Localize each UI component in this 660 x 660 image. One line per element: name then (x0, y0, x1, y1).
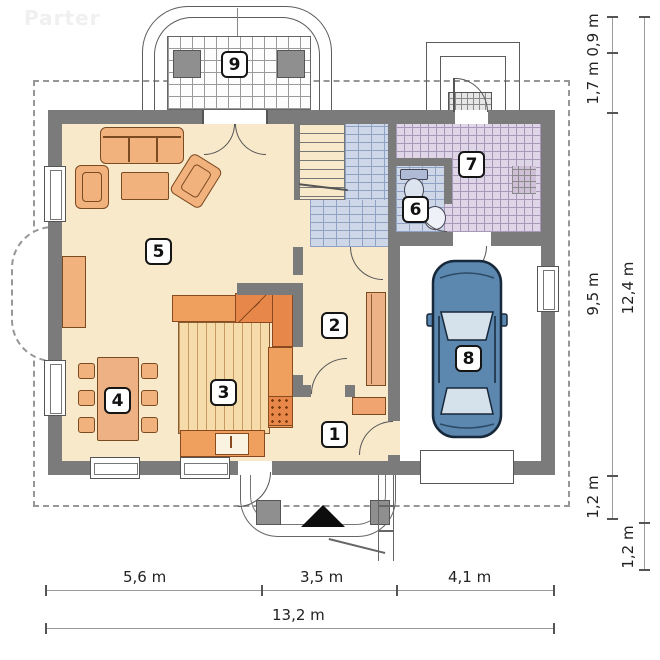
armchair-left-seat (82, 172, 102, 202)
wall-hall2-room1-a (303, 385, 311, 397)
entrance-arrow-icon (301, 505, 345, 527)
dim-line-bottom-segments (45, 590, 554, 591)
kitchen-corner-cabinet (235, 293, 273, 323)
room-label-9: 9 (221, 51, 248, 78)
wall-garage-left-b (388, 455, 400, 461)
room-label-1: 1 (321, 421, 348, 448)
dim-bottom-2: 3,5 m (300, 568, 343, 586)
dim-right-inner-2: 1,7 m (584, 53, 602, 113)
wardrobe (366, 292, 386, 386)
room-label-2: 2 (321, 312, 348, 339)
window-bottom-kitchen-frame (184, 463, 228, 475)
dim-tick (396, 585, 398, 596)
porch-pillar-left (256, 500, 281, 525)
room-label-2-text: 2 (329, 316, 341, 336)
room-label-7-text: 7 (466, 155, 478, 175)
porch-side-step-line2 (378, 530, 394, 532)
room-label-1-text: 1 (329, 425, 341, 445)
kitchen-hob (268, 396, 293, 426)
dim-tick (45, 623, 47, 634)
dim-bottom-total: 13,2 m (272, 606, 325, 624)
vestibule-closet (352, 397, 386, 415)
wall-garage-left-a (388, 232, 400, 421)
dim-bottom-3: 4,1 m (448, 568, 491, 586)
room-label-4: 4 (104, 387, 131, 414)
floor-name-watermark: Parter (24, 6, 100, 30)
entrance-door-leaf (453, 78, 455, 112)
room-label-9-text: 9 (229, 55, 241, 75)
room-label-3-text: 3 (218, 383, 230, 403)
room-label-6-text: 6 (410, 200, 422, 220)
terrace-planter-left (173, 50, 201, 78)
dim-right-inner-4: 1,2 m (584, 467, 602, 527)
dim-right-outer-1: 12,4 m (619, 256, 637, 320)
wall-stub-corridor (293, 247, 303, 275)
wall-corridor-hall7 (388, 124, 396, 232)
terrace-center-line (237, 8, 238, 36)
kitchen-fridge (272, 293, 293, 347)
sofa-divider-2 (156, 137, 158, 162)
dim-tick (45, 585, 47, 596)
kitchen-sink (215, 433, 249, 455)
window-bottom-dining-frame (94, 463, 138, 475)
dim-tick (607, 518, 618, 520)
room-label-6: 6 (402, 196, 429, 223)
dim-tick (607, 475, 618, 477)
dim-tick (639, 569, 650, 571)
wall-kitchen-hall-b (293, 375, 303, 397)
floor-plan-canvas: Parter (0, 0, 660, 660)
porch-side-steps (378, 475, 394, 561)
dining-chair-r3 (141, 417, 158, 433)
dining-chair-r1 (141, 363, 158, 379)
porch-side-step-line1 (378, 505, 394, 507)
dining-chair-l3 (78, 417, 95, 433)
wall-left (48, 110, 62, 475)
sofa-divider-1 (128, 137, 130, 162)
dim-tick (639, 16, 650, 18)
terrace-planter-right (277, 50, 305, 78)
dim-tick (553, 623, 555, 634)
corridor-floor-l (310, 200, 388, 247)
dim-bottom-1: 5,6 m (123, 568, 166, 586)
dim-right-outer-2: 1,2 m (619, 517, 637, 577)
staircase-cut-line (300, 146, 344, 160)
dining-chair-l2 (78, 390, 95, 406)
bay-outline-dashed (11, 226, 53, 362)
room-label-5: 5 (145, 238, 172, 265)
window-left-upper-frame (50, 170, 62, 220)
wall-wc-right (444, 158, 452, 204)
dim-line-right-outer (644, 16, 645, 570)
dim-right-inner-3: 9,5 m (584, 264, 602, 324)
hall7-garage-opening (453, 232, 491, 246)
hall7-mat (512, 166, 536, 194)
wall-kitchen-stub (237, 283, 297, 295)
entrance-door-opening (455, 110, 488, 124)
wall-wc-top (388, 158, 452, 166)
dim-line-right-inner (612, 16, 613, 518)
window-garage-right-frame (543, 270, 555, 310)
dim-tick (607, 16, 618, 18)
room-label-5-text: 5 (153, 242, 165, 262)
coffee-table (121, 172, 169, 200)
dim-tick (553, 585, 555, 596)
room-label-3: 3 (210, 379, 237, 406)
room-label-8: 8 (455, 345, 482, 372)
room-label-4-text: 4 (112, 391, 124, 411)
dim-tick (607, 112, 618, 114)
porch-corner-step-line (329, 538, 386, 553)
dim-tick (261, 585, 263, 596)
dim-tick (639, 522, 650, 524)
wall-stairs-side (294, 124, 299, 200)
dim-tick (607, 52, 618, 54)
room-label-7: 7 (458, 151, 485, 178)
sideboard (62, 256, 86, 328)
garage-door (420, 450, 514, 484)
sofa (100, 127, 184, 164)
dining-chair-l1 (78, 363, 95, 379)
terrace-door-opening (202, 110, 268, 124)
dining-chair-r2 (141, 390, 158, 406)
kitchen-sink-faucet (230, 436, 232, 448)
dim-line-bottom-total (45, 628, 554, 629)
wardrobe-line (371, 294, 372, 384)
kitchen-floor (178, 322, 270, 434)
sofa-back-line (103, 136, 181, 138)
window-left-lower-frame (50, 364, 62, 414)
room-label-8-text: 8 (463, 349, 475, 369)
